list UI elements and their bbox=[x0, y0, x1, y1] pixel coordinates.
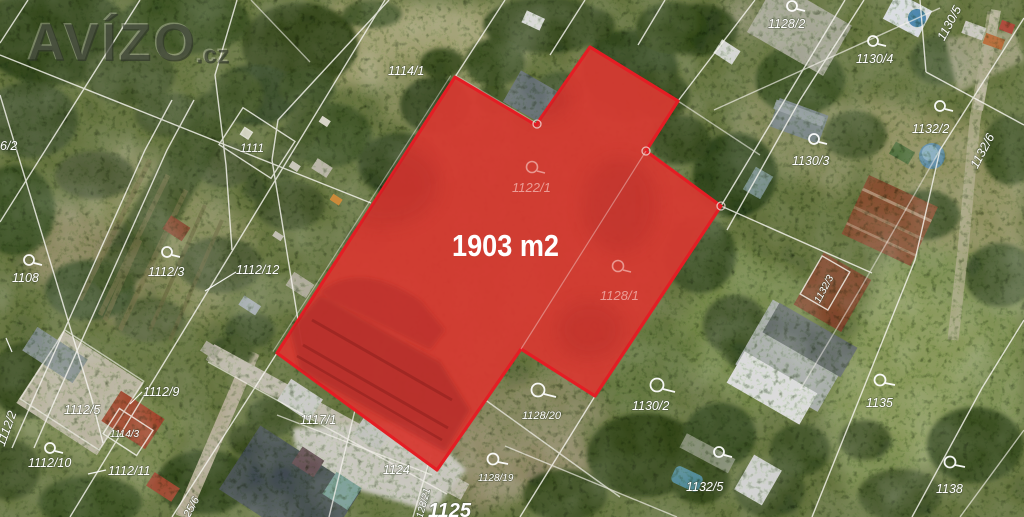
svg-text:AVÍZO: AVÍZO bbox=[28, 13, 199, 73]
svg-text:1112/9: 1112/9 bbox=[143, 385, 179, 399]
svg-text:1903 m2: 1903 m2 bbox=[452, 228, 559, 263]
svg-text:.cz: .cz bbox=[197, 42, 230, 70]
svg-text:1124: 1124 bbox=[383, 463, 410, 477]
svg-text:1128/20: 1128/20 bbox=[522, 410, 562, 422]
svg-text:1138: 1138 bbox=[936, 482, 963, 496]
svg-text:1128/19: 1128/19 bbox=[478, 473, 514, 484]
svg-text:1108: 1108 bbox=[12, 271, 39, 285]
svg-text:1128/2: 1128/2 bbox=[768, 17, 805, 31]
svg-text:1130/3: 1130/3 bbox=[792, 154, 829, 168]
svg-text:1135: 1135 bbox=[866, 396, 893, 410]
svg-text:1117/1: 1117/1 bbox=[300, 413, 336, 427]
svg-text:1125: 1125 bbox=[428, 500, 472, 517]
svg-text:1112/10: 1112/10 bbox=[28, 456, 71, 470]
svg-text:1112/5: 1112/5 bbox=[64, 403, 100, 417]
svg-text:1114/1: 1114/1 bbox=[388, 64, 424, 78]
svg-text:1112/12: 1112/12 bbox=[236, 263, 279, 277]
svg-text:1112/3: 1112/3 bbox=[148, 265, 184, 279]
svg-text:1112/11: 1112/11 bbox=[108, 464, 150, 478]
svg-text:1130/4: 1130/4 bbox=[856, 52, 893, 66]
svg-text:1128/1: 1128/1 bbox=[600, 288, 639, 303]
svg-text:1130/2: 1130/2 bbox=[632, 399, 669, 413]
svg-text:1111: 1111 bbox=[240, 141, 264, 155]
svg-text:1132/2: 1132/2 bbox=[912, 122, 949, 136]
svg-text:1132/5: 1132/5 bbox=[686, 480, 723, 494]
svg-text:6/2: 6/2 bbox=[0, 139, 17, 153]
svg-text:1114/3: 1114/3 bbox=[110, 429, 140, 440]
svg-text:1122/1: 1122/1 bbox=[512, 180, 551, 195]
